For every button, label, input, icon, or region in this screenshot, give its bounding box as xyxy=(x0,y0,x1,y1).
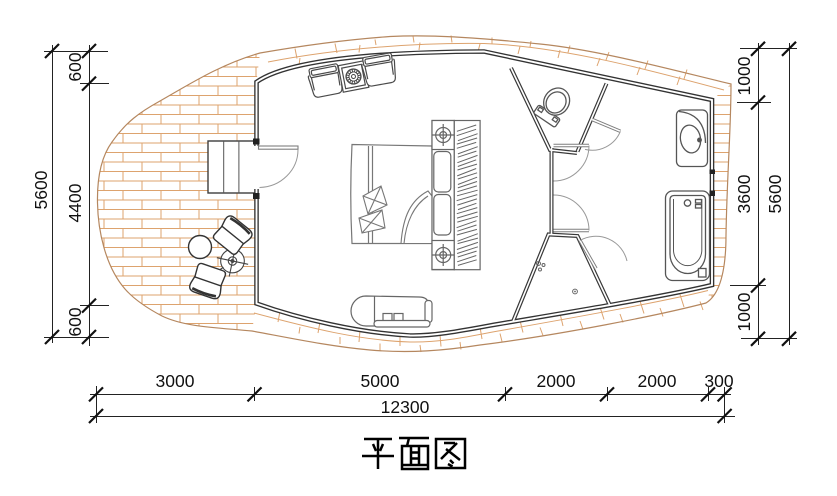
svg-text:5600: 5600 xyxy=(31,170,51,209)
svg-text:5000: 5000 xyxy=(361,371,400,391)
svg-text:1000: 1000 xyxy=(734,292,754,331)
svg-text:600: 600 xyxy=(65,52,85,81)
svg-text:2000: 2000 xyxy=(537,371,576,391)
svg-text:3600: 3600 xyxy=(734,174,754,213)
svg-text:5600: 5600 xyxy=(765,174,785,213)
svg-text:1000: 1000 xyxy=(734,56,754,95)
svg-text:12300: 12300 xyxy=(381,397,430,417)
svg-text:600: 600 xyxy=(65,307,85,336)
svg-text:2000: 2000 xyxy=(638,371,677,391)
svg-text:300: 300 xyxy=(704,371,733,391)
svg-text:3000: 3000 xyxy=(156,371,195,391)
svg-text:4400: 4400 xyxy=(65,183,85,222)
